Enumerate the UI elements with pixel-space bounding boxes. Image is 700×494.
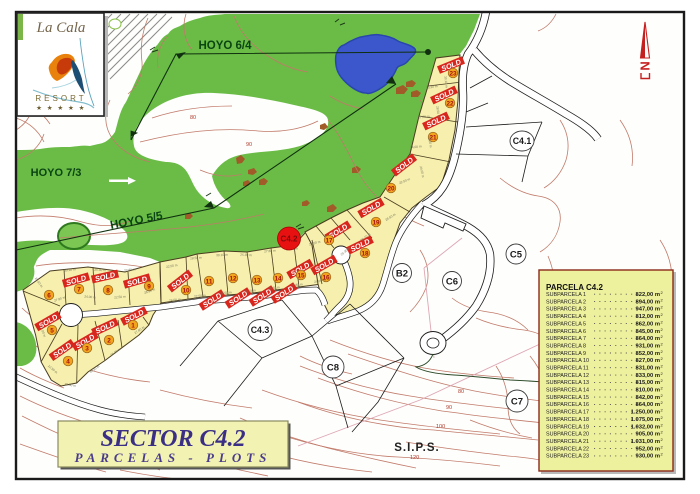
svg-text:SUBPARCELA 2: SUBPARCELA 2 — [546, 299, 586, 305]
svg-text:SUBPARCELA 22: SUBPARCELA 22 — [546, 446, 589, 452]
svg-text:B2: B2 — [396, 269, 408, 280]
svg-text:25.30 m: 25.30 m — [94, 268, 106, 273]
svg-text:852,00 m: 852,00 m — [636, 351, 661, 357]
svg-text:845,00 m: 845,00 m — [636, 329, 661, 335]
svg-text:SUBPARCELA 1: SUBPARCELA 1 — [546, 292, 586, 298]
svg-text:1.075,00 m: 1.075,00 m — [631, 417, 660, 423]
svg-text:C4.3: C4.3 — [251, 325, 270, 335]
svg-text:SUBPARCELA 18: SUBPARCELA 18 — [546, 417, 589, 423]
svg-text:810,00 m: 810,00 m — [636, 388, 661, 394]
svg-text:SUBPARCELA 13: SUBPARCELA 13 — [546, 380, 589, 386]
svg-text:C4.1: C4.1 — [513, 136, 532, 146]
svg-text:3: 3 — [85, 345, 89, 352]
svg-text:80: 80 — [458, 389, 464, 395]
svg-text:20: 20 — [387, 185, 395, 192]
svg-text:30.10 m: 30.10 m — [216, 253, 228, 258]
svg-text:SECTOR C4.2: SECTOR C4.2 — [101, 426, 246, 452]
svg-text:SUBPARCELA 10: SUBPARCELA 10 — [546, 358, 589, 364]
svg-text:SUBPARCELA 9: SUBPARCELA 9 — [546, 351, 586, 357]
svg-text:SUBPARCELA 15: SUBPARCELA 15 — [546, 395, 589, 401]
svg-text:952,00 m: 952,00 m — [636, 446, 661, 452]
svg-text:833,00 m: 833,00 m — [636, 373, 661, 379]
svg-text:827,00 m: 827,00 m — [636, 358, 661, 364]
svg-text:19: 19 — [372, 219, 380, 226]
svg-text:10: 10 — [182, 287, 190, 294]
svg-text:18: 18 — [361, 250, 369, 257]
svg-text:23: 23 — [449, 70, 457, 77]
svg-text:930,00 m: 930,00 m — [636, 454, 661, 460]
svg-text:1.032,00 m: 1.032,00 m — [631, 424, 660, 430]
svg-text:C5: C5 — [510, 250, 523, 261]
svg-text:22: 22 — [446, 100, 454, 107]
svg-text:5: 5 — [50, 327, 54, 334]
svg-text:C4.2: C4.2 — [281, 235, 298, 244]
svg-text:SUBPARCELA 21: SUBPARCELA 21 — [546, 439, 589, 445]
svg-text:100: 100 — [436, 424, 445, 430]
svg-text:SUBPARCELA 7: SUBPARCELA 7 — [546, 336, 586, 342]
svg-text:RESORT: RESORT — [35, 94, 86, 103]
svg-text:862,00 m: 862,00 m — [636, 321, 661, 327]
svg-text:C7: C7 — [511, 397, 523, 408]
svg-text:80: 80 — [190, 115, 196, 121]
svg-text:PARCELA C4.2: PARCELA C4.2 — [546, 283, 603, 292]
svg-text:4: 4 — [66, 358, 70, 365]
svg-text:14: 14 — [274, 275, 282, 282]
svg-text:831,00 m: 831,00 m — [636, 366, 661, 372]
svg-text:11: 11 — [206, 278, 213, 285]
svg-text:7: 7 — [77, 286, 81, 293]
svg-text:★ ★ ★ ★ ★: ★ ★ ★ ★ ★ — [36, 104, 86, 112]
svg-text:842,00 m: 842,00 m — [636, 395, 661, 401]
svg-text:815,00 m: 815,00 m — [636, 380, 661, 386]
svg-text:864,00 m: 864,00 m — [636, 336, 661, 342]
svg-text:SUBPARCELA 19: SUBPARCELA 19 — [546, 424, 589, 430]
svg-text:SUBPARCELA 23: SUBPARCELA 23 — [546, 454, 589, 460]
svg-text:17: 17 — [325, 237, 333, 244]
svg-text:N: N — [638, 61, 653, 70]
svg-text:6: 6 — [47, 292, 51, 299]
svg-text:1.250,00 m: 1.250,00 m — [631, 410, 660, 416]
svg-text:SUBPARCELA 6: SUBPARCELA 6 — [546, 329, 586, 335]
svg-text:90: 90 — [446, 405, 452, 411]
svg-text:931,00 m: 931,00 m — [636, 343, 661, 349]
svg-text:C8: C8 — [327, 363, 339, 374]
svg-text:864,00 m: 864,00 m — [636, 402, 661, 408]
svg-text:SUBPARCELA 11: SUBPARCELA 11 — [546, 366, 589, 372]
svg-text:SUBPARCELA 3: SUBPARCELA 3 — [546, 307, 586, 313]
svg-text:SUBPARCELA 5: SUBPARCELA 5 — [546, 321, 586, 327]
svg-text:15: 15 — [297, 272, 305, 279]
svg-text:25.30 m: 25.30 m — [240, 253, 252, 257]
svg-text:1: 1 — [131, 322, 135, 329]
svg-text:822,00 m: 822,00 m — [636, 292, 661, 298]
svg-text:812,00 m: 812,00 m — [636, 314, 661, 320]
svg-text:120: 120 — [410, 455, 419, 461]
svg-text:S.I.P.S.: S.I.P.S. — [394, 442, 440, 454]
svg-text:12: 12 — [229, 275, 237, 282]
svg-text:SUBPARCELA 16: SUBPARCELA 16 — [546, 402, 589, 408]
svg-text:947,00 m: 947,00 m — [636, 307, 661, 313]
svg-text:SUBPARCELA 12: SUBPARCELA 12 — [546, 373, 589, 379]
svg-text:1.031,00 m: 1.031,00 m — [631, 439, 660, 445]
svg-text:SUBPARCELA 8: SUBPARCELA 8 — [546, 343, 586, 349]
svg-text:PARCELAS - PLOTS: PARCELAS - PLOTS — [75, 450, 272, 465]
svg-text:SUBPARCELA 4: SUBPARCELA 4 — [546, 314, 586, 320]
svg-text:HOYO 7/3: HOYO 7/3 — [31, 167, 82, 179]
svg-text:HOYO 6/4: HOYO 6/4 — [198, 40, 252, 52]
svg-text:13: 13 — [253, 277, 261, 284]
svg-text:894,00 m: 894,00 m — [636, 299, 661, 305]
svg-text:La Cala: La Cala — [36, 20, 86, 36]
svg-text:SUBPARCELA 17: SUBPARCELA 17 — [546, 410, 589, 416]
svg-text:2: 2 — [107, 337, 111, 344]
svg-text:905,00 m: 905,00 m — [636, 432, 661, 438]
svg-text:C6: C6 — [446, 277, 458, 288]
svg-text:90: 90 — [246, 142, 252, 148]
svg-text:8: 8 — [106, 287, 110, 294]
svg-text:SUBPARCELA 20: SUBPARCELA 20 — [546, 432, 589, 438]
svg-text:SUBPARCELA 14: SUBPARCELA 14 — [546, 388, 589, 394]
